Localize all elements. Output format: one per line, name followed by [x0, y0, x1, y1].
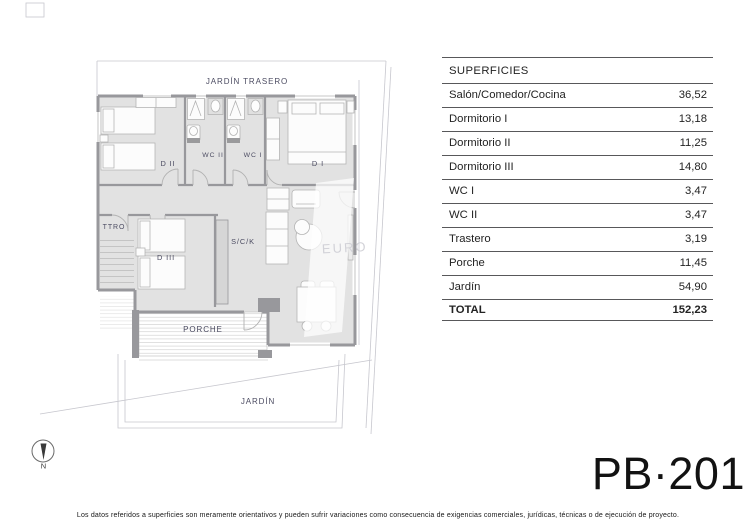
row-value: 54,90	[679, 276, 707, 299]
parcel-diagonal-line	[366, 61, 386, 428]
row-label: Porche	[449, 252, 485, 275]
label-jardin: JARDÍN	[241, 397, 275, 406]
table-row: Porche 11,45	[442, 252, 713, 276]
surfaces-table-title: SUPERFICIES	[442, 58, 713, 84]
sink-icon	[208, 99, 223, 115]
toilet-icon	[227, 125, 240, 143]
shower-icon	[188, 99, 205, 120]
table-row: Jardín 54,90	[442, 276, 713, 300]
label-sck: S/C/K	[231, 237, 255, 246]
storage-hatch	[100, 240, 134, 288]
side-strip-hatch	[100, 296, 134, 330]
row-label: Dormitorio III	[449, 156, 514, 179]
wardrobe-icon	[136, 98, 176, 108]
porch-area	[139, 312, 268, 360]
table-row: WC I 3,47	[442, 180, 713, 204]
hall-closet	[216, 220, 228, 304]
total-label: TOTAL	[449, 300, 486, 320]
garden-diagonal-line	[40, 360, 372, 414]
disclaimer: Los datos referidos a superficies son me…	[0, 512, 756, 519]
table-row: Dormitorio II 11,25	[442, 132, 713, 156]
watermark-text: EURO	[322, 239, 368, 256]
label-porche: PORCHE	[183, 325, 223, 334]
label-d2: D II	[160, 159, 175, 168]
label-wc2: WC II	[202, 152, 224, 159]
row-value: 3,47	[685, 180, 707, 203]
table-row: Trastero 3,19	[442, 228, 713, 252]
row-value: 13,18	[679, 108, 707, 131]
row-label: Dormitorio II	[449, 132, 511, 155]
compass-north-label: N	[41, 462, 46, 471]
label-ttro: TTRO	[103, 224, 126, 231]
bed-icon	[278, 100, 354, 164]
row-label: Salón/Comedor/Cocina	[449, 84, 566, 107]
table-row: WC II 3,47	[442, 204, 713, 228]
row-value: 14,80	[679, 156, 707, 179]
row-value: 11,25	[680, 132, 707, 155]
label-wc1: WC I	[244, 152, 263, 159]
row-label: WC II	[449, 204, 477, 227]
row-label: WC I	[449, 180, 474, 203]
compass-icon: N	[32, 440, 54, 470]
parcel-diagonal-line	[371, 67, 391, 434]
row-value: 36,52	[679, 84, 707, 107]
table-row: Salón/Comedor/Cocina 36,52	[442, 84, 713, 108]
row-label: Jardín	[449, 276, 480, 299]
total-value: 152,23	[672, 300, 707, 320]
shower-icon	[228, 99, 245, 120]
floor-plan: EURO JARDÍN TRASERO D II WC II WC I D I …	[0, 0, 440, 470]
wall-block	[258, 298, 280, 312]
label-d1: D I	[312, 159, 324, 168]
kitchen-counter-icon	[267, 188, 289, 210]
row-value: 11,45	[680, 252, 707, 275]
toilet-icon	[187, 125, 200, 143]
label-jardin-trasero: JARDÍN TRASERO	[206, 77, 288, 86]
table-total-row: TOTAL 152,23	[442, 300, 713, 321]
sofa-icon	[266, 212, 288, 264]
plan-code: PB·201	[592, 448, 745, 500]
row-value: 3,47	[685, 204, 707, 227]
row-value: 3,19	[685, 228, 707, 251]
wardrobe-icon	[267, 118, 280, 160]
boundary-fragment	[26, 3, 44, 17]
table-row: Dormitorio III 14,80	[442, 156, 713, 180]
plan-sheet: EURO JARDÍN TRASERO D II WC II WC I D I …	[0, 0, 756, 528]
table-row: Dormitorio I 13,18	[442, 108, 713, 132]
row-label: Dormitorio I	[449, 108, 507, 131]
row-label: Trastero	[449, 228, 491, 251]
label-d3: D III	[157, 253, 175, 262]
surfaces-table: SUPERFICIES Salón/Comedor/Cocina 36,52 D…	[442, 57, 713, 321]
sink-icon	[248, 99, 263, 115]
porch-pillar	[132, 310, 139, 358]
garden-boundary	[40, 354, 372, 428]
porch-pillar	[258, 350, 272, 358]
